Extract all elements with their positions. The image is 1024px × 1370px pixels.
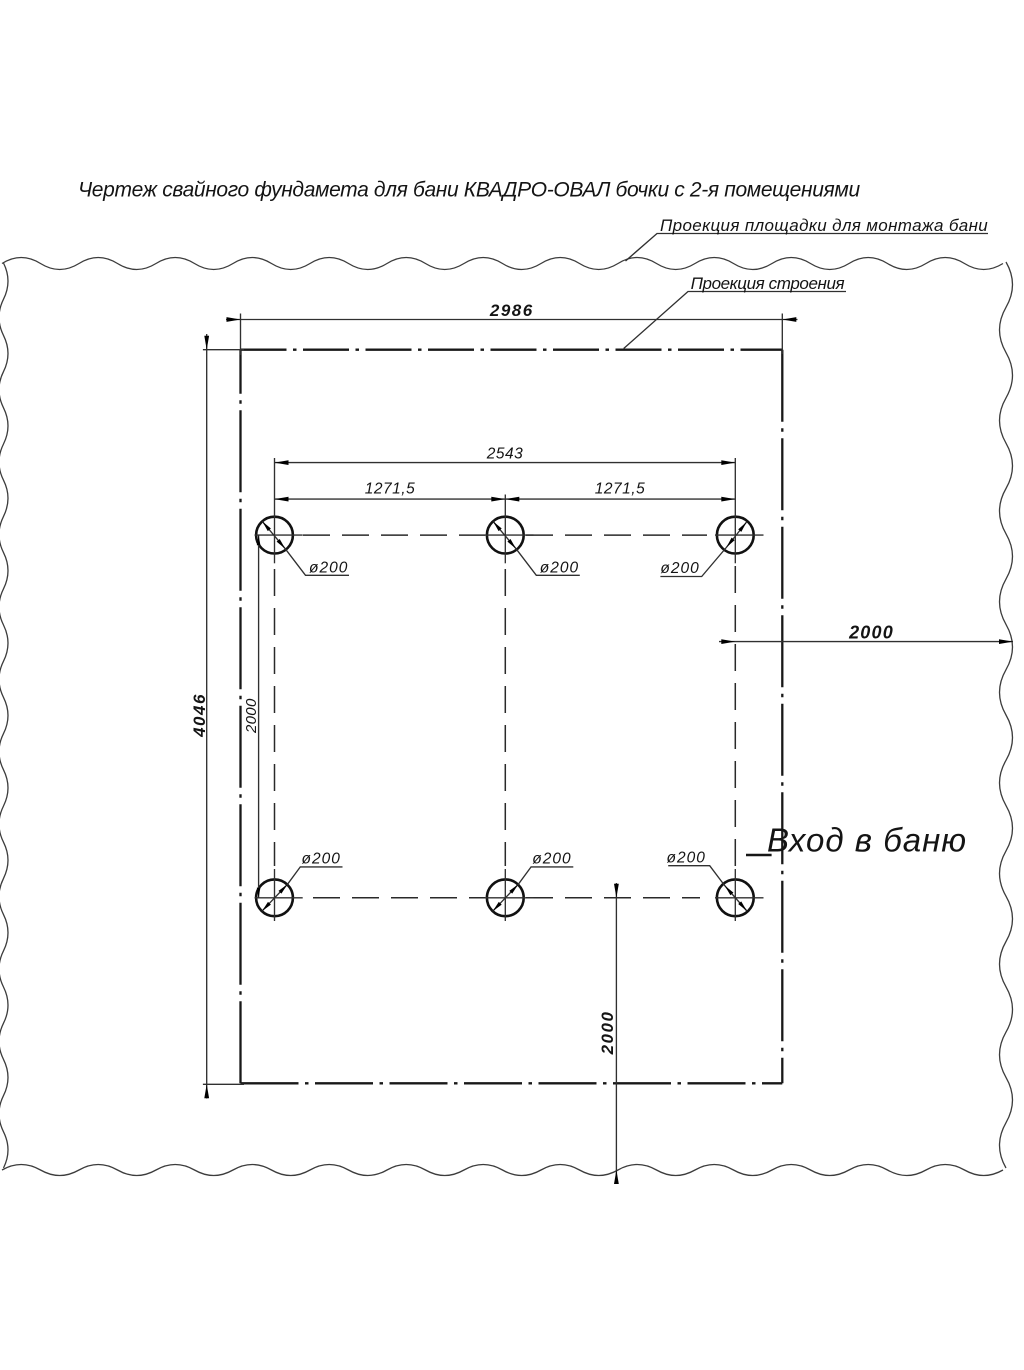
svg-text:ø200: ø200 [660,560,699,577]
svg-text:2000: 2000 [848,623,894,643]
svg-text:Проекция строения: Проекция строения [691,274,845,293]
svg-text:2000: 2000 [243,698,260,734]
svg-text:Вход в баню: Вход в баню [767,821,967,858]
svg-text:1271,5: 1271,5 [595,481,645,498]
svg-text:4046: 4046 [190,693,209,738]
svg-text:Проекция площадки для монтажа: Проекция площадки для монтажа бани [660,216,988,235]
svg-text:Чертеж свайного фундамета для: Чертеж свайного фундамета для бани КВАДР… [78,179,860,202]
svg-text:ø200: ø200 [667,850,706,867]
svg-text:ø200: ø200 [302,851,341,868]
svg-text:ø200: ø200 [309,560,348,577]
svg-text:ø200: ø200 [532,851,571,868]
svg-text:2543: 2543 [486,446,523,463]
svg-text:1271,5: 1271,5 [365,481,415,498]
svg-text:ø200: ø200 [540,560,579,577]
svg-text:2000: 2000 [598,1011,617,1056]
svg-text:2986: 2986 [489,301,534,320]
